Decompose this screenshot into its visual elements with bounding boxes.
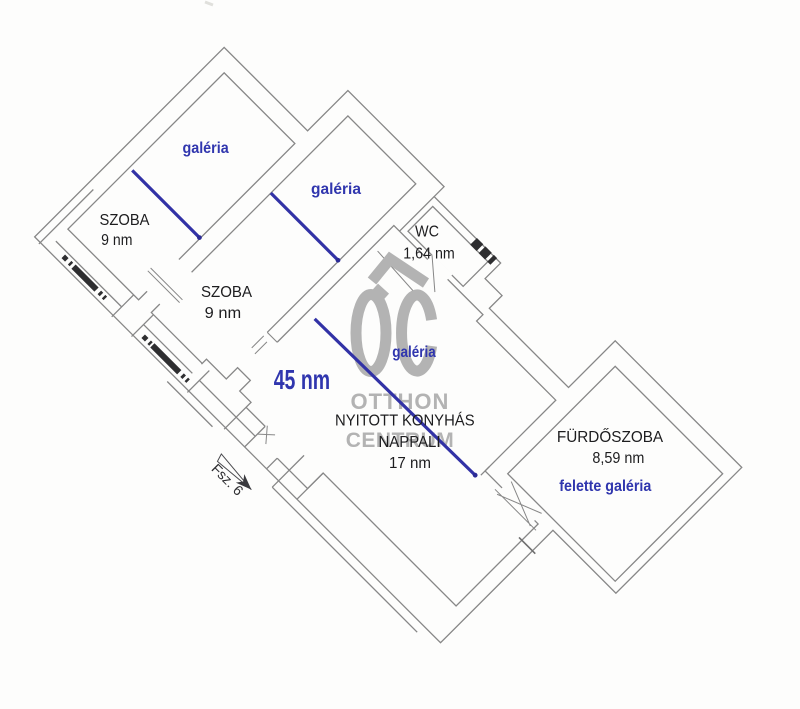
svg-text:NAPPALI: NAPPALI	[379, 434, 441, 451]
svg-text:galéria: galéria	[311, 181, 361, 198]
svg-text:45 nm: 45 nm	[274, 364, 330, 395]
svg-text:9 nm: 9 nm	[101, 232, 132, 249]
svg-text:1,64 nm: 1,64 nm	[403, 245, 455, 262]
svg-text:SZOBA: SZOBA	[100, 212, 150, 229]
svg-text:9 nm: 9 nm	[205, 305, 242, 322]
svg-text:felette galéria: felette galéria	[559, 478, 651, 495]
svg-text:galéria: galéria	[392, 344, 435, 361]
svg-text:8,59 nm: 8,59 nm	[592, 450, 644, 467]
svg-text:FÜRDŐSZOBA: FÜRDŐSZOBA	[557, 427, 664, 446]
svg-text:NYITOTT KONYHÁS: NYITOTT KONYHÁS	[335, 411, 475, 430]
svg-text:galéria: galéria	[182, 140, 228, 157]
svg-text:WC: WC	[415, 224, 439, 241]
svg-text:17 nm: 17 nm	[389, 455, 431, 472]
svg-text:SZOBA: SZOBA	[201, 284, 252, 301]
